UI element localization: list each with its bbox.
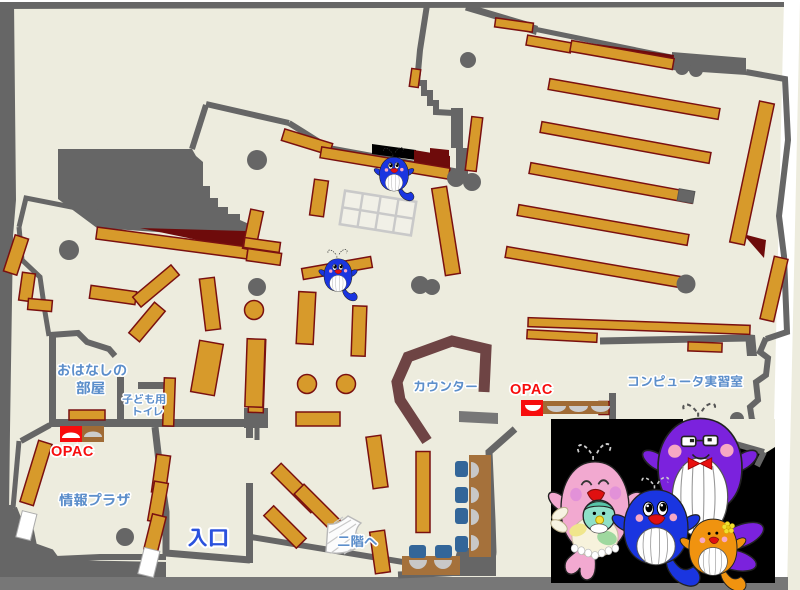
svg-text:OPAC: OPAC <box>51 444 94 460</box>
svg-text:OPAC: OPAC <box>510 382 553 398</box>
